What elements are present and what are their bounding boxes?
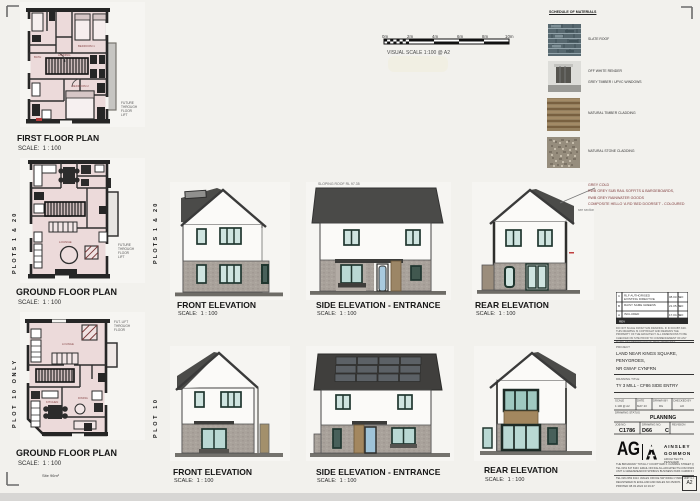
svg-text:LANDING: LANDING: [58, 53, 70, 57]
svg-text:BATH: BATH: [34, 55, 41, 59]
svg-text:A: A: [618, 313, 620, 317]
svg-text:MAY 23: MAY 23: [637, 404, 647, 408]
svg-text:INCLUDED: INCLUDED: [624, 312, 640, 316]
svg-text:D66: D66: [642, 428, 652, 434]
svg-text:SCALE: SCALE: [615, 399, 624, 403]
svg-text:AO: AO: [679, 295, 684, 299]
svg-text:REV: REV: [619, 320, 625, 324]
svg-text:1:100 @ A2: 1:100 @ A2: [615, 404, 630, 408]
svg-text:EXISTING DIRECTIVE: EXISTING DIRECTIVE: [624, 297, 655, 301]
svg-text:6m: 6m: [457, 34, 463, 39]
svg-text:B: B: [618, 304, 620, 308]
svg-text:LOUNGE: LOUNGE: [59, 240, 72, 244]
svg-text:C: C: [665, 428, 669, 434]
svg-text:DINING: DINING: [78, 396, 88, 400]
svg-text:VISUAL SCALE 1:100 @ A2: VISUAL SCALE 1:100 @ A2: [387, 50, 450, 56]
svg-text:C1786: C1786: [619, 428, 635, 434]
svg-text:AO: AO: [679, 304, 684, 308]
svg-text:CHECKED BY: CHECKED BY: [673, 399, 691, 403]
svg-text:AO: AO: [680, 404, 685, 408]
svg-text:REVISION: REVISION: [672, 423, 685, 427]
svg-text:SLOPING ROOF RL 97.35: SLOPING ROOF RL 97.35: [318, 182, 360, 186]
svg-text:0m: 0m: [382, 34, 388, 39]
svg-text:DATE: DATE: [637, 399, 644, 403]
svg-text:LOUNGE: LOUNGE: [62, 342, 74, 346]
svg-text:BEDROOM 2: BEDROOM 2: [72, 84, 89, 88]
svg-text:RAISY SAME GREENS: RAISY SAME GREENS: [624, 303, 656, 307]
svg-text:10m: 10m: [505, 34, 514, 39]
svg-text:JOB NO.: JOB NO.: [615, 423, 626, 427]
svg-text:DRAWN BY: DRAWN BY: [653, 399, 668, 403]
svg-text:8m: 8m: [482, 34, 488, 39]
svg-text:2m: 2m: [407, 34, 413, 39]
svg-text:PLANNING: PLANNING: [650, 415, 676, 421]
svg-text:DRAWING STATUS: DRAWING STATUS: [615, 411, 640, 415]
svg-text:KITCHEN: KITCHEN: [46, 400, 58, 404]
svg-text:RG: RG: [659, 404, 663, 408]
svg-text:BEDROOM 1: BEDROOM 1: [78, 44, 95, 48]
svg-text:4m: 4m: [432, 34, 438, 39]
svg-text:AO: AO: [679, 313, 684, 317]
svg-text:DRAWING NO.: DRAWING NO.: [642, 423, 661, 427]
